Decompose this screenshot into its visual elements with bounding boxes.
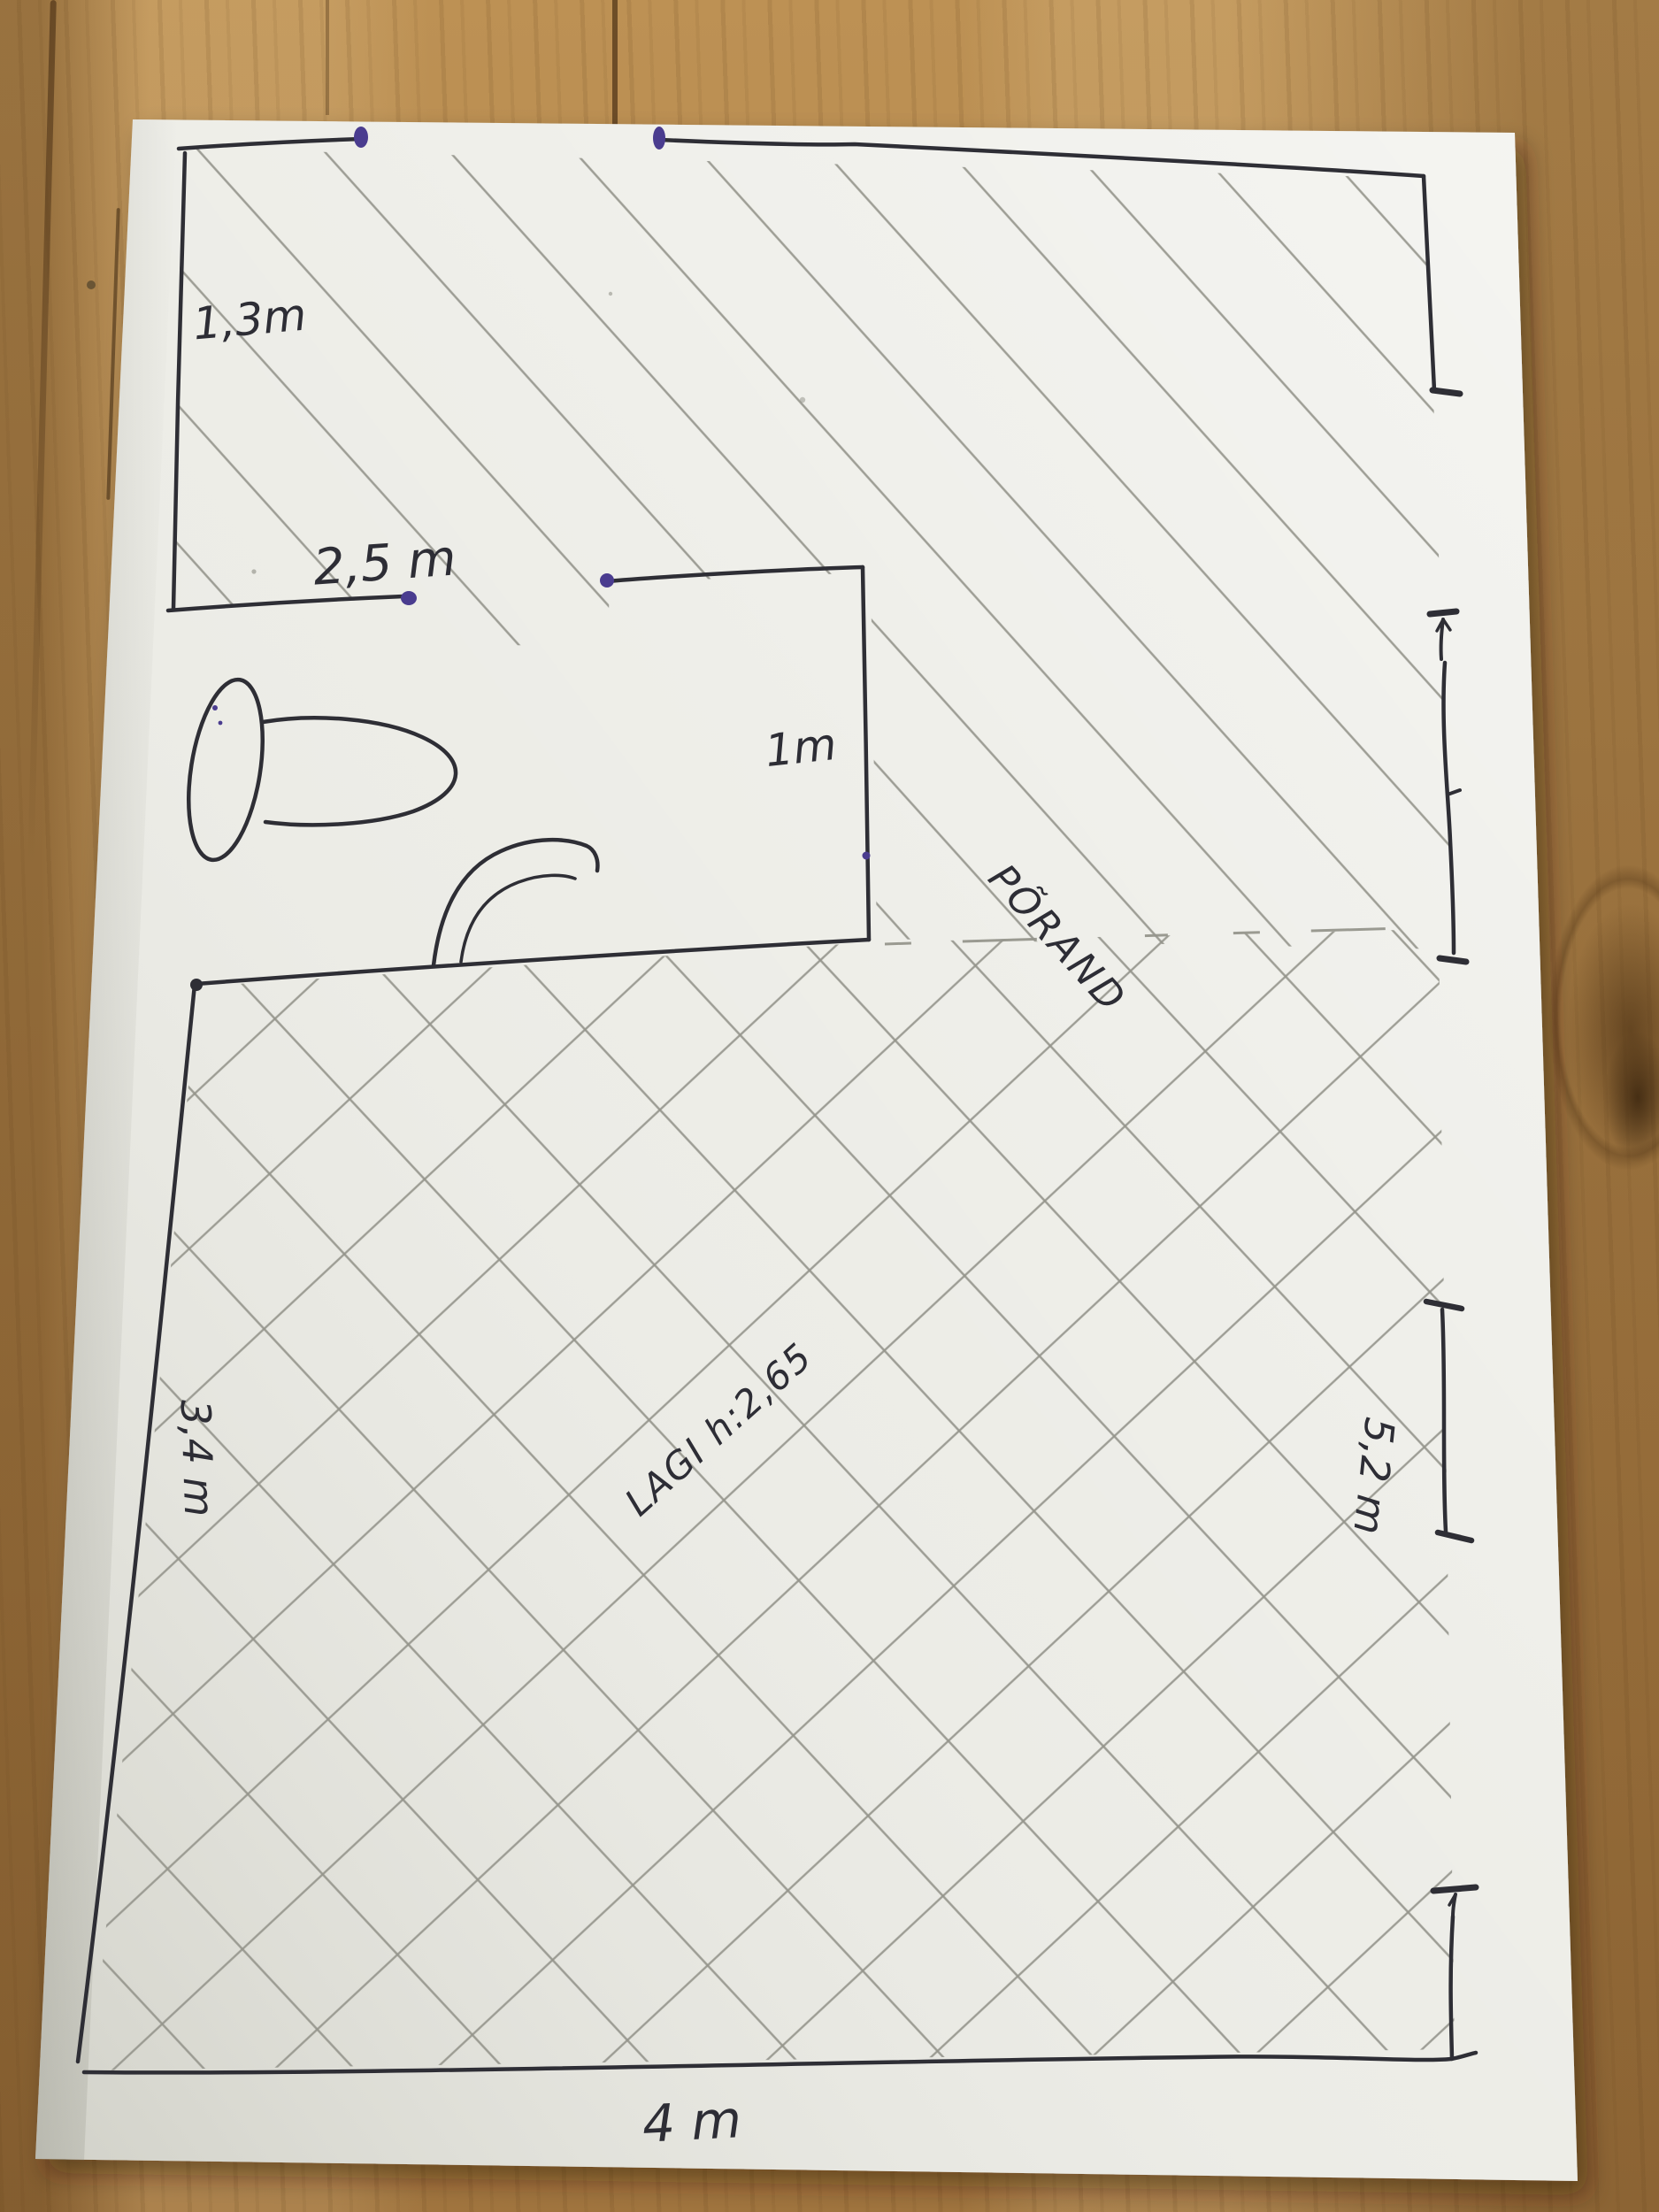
purple-speck [219, 721, 223, 726]
dimension-label-1-3m: 1,3m [191, 289, 309, 350]
dimension-label-1m: 1m [763, 718, 839, 777]
dimension-label-2-5m: 2,5 m [311, 529, 458, 596]
purple-mark [600, 573, 614, 588]
purple-mark [401, 591, 417, 605]
purple-mark [863, 852, 871, 860]
purple-speck [212, 705, 218, 710]
purple-mark [354, 127, 368, 148]
dimension-label-3-4m: 3,4 m [172, 1399, 224, 1517]
photo-scene: 1,3m 2,5 m 1m PÕRAND LAGI h:2,65 3,4 m 5… [0, 0, 1659, 2212]
floor-plan-sketch: 1,3m 2,5 m 1m PÕRAND LAGI h:2,65 3,4 m 5… [0, 0, 1659, 2212]
dimension-label-4m: 4 m [641, 2089, 742, 2154]
crosshatched-area-main-room [92, 929, 1455, 2070]
corner-ink-dot [190, 979, 203, 991]
wall-right-upper-end-tick [1432, 390, 1460, 394]
purple-mark [653, 127, 665, 150]
